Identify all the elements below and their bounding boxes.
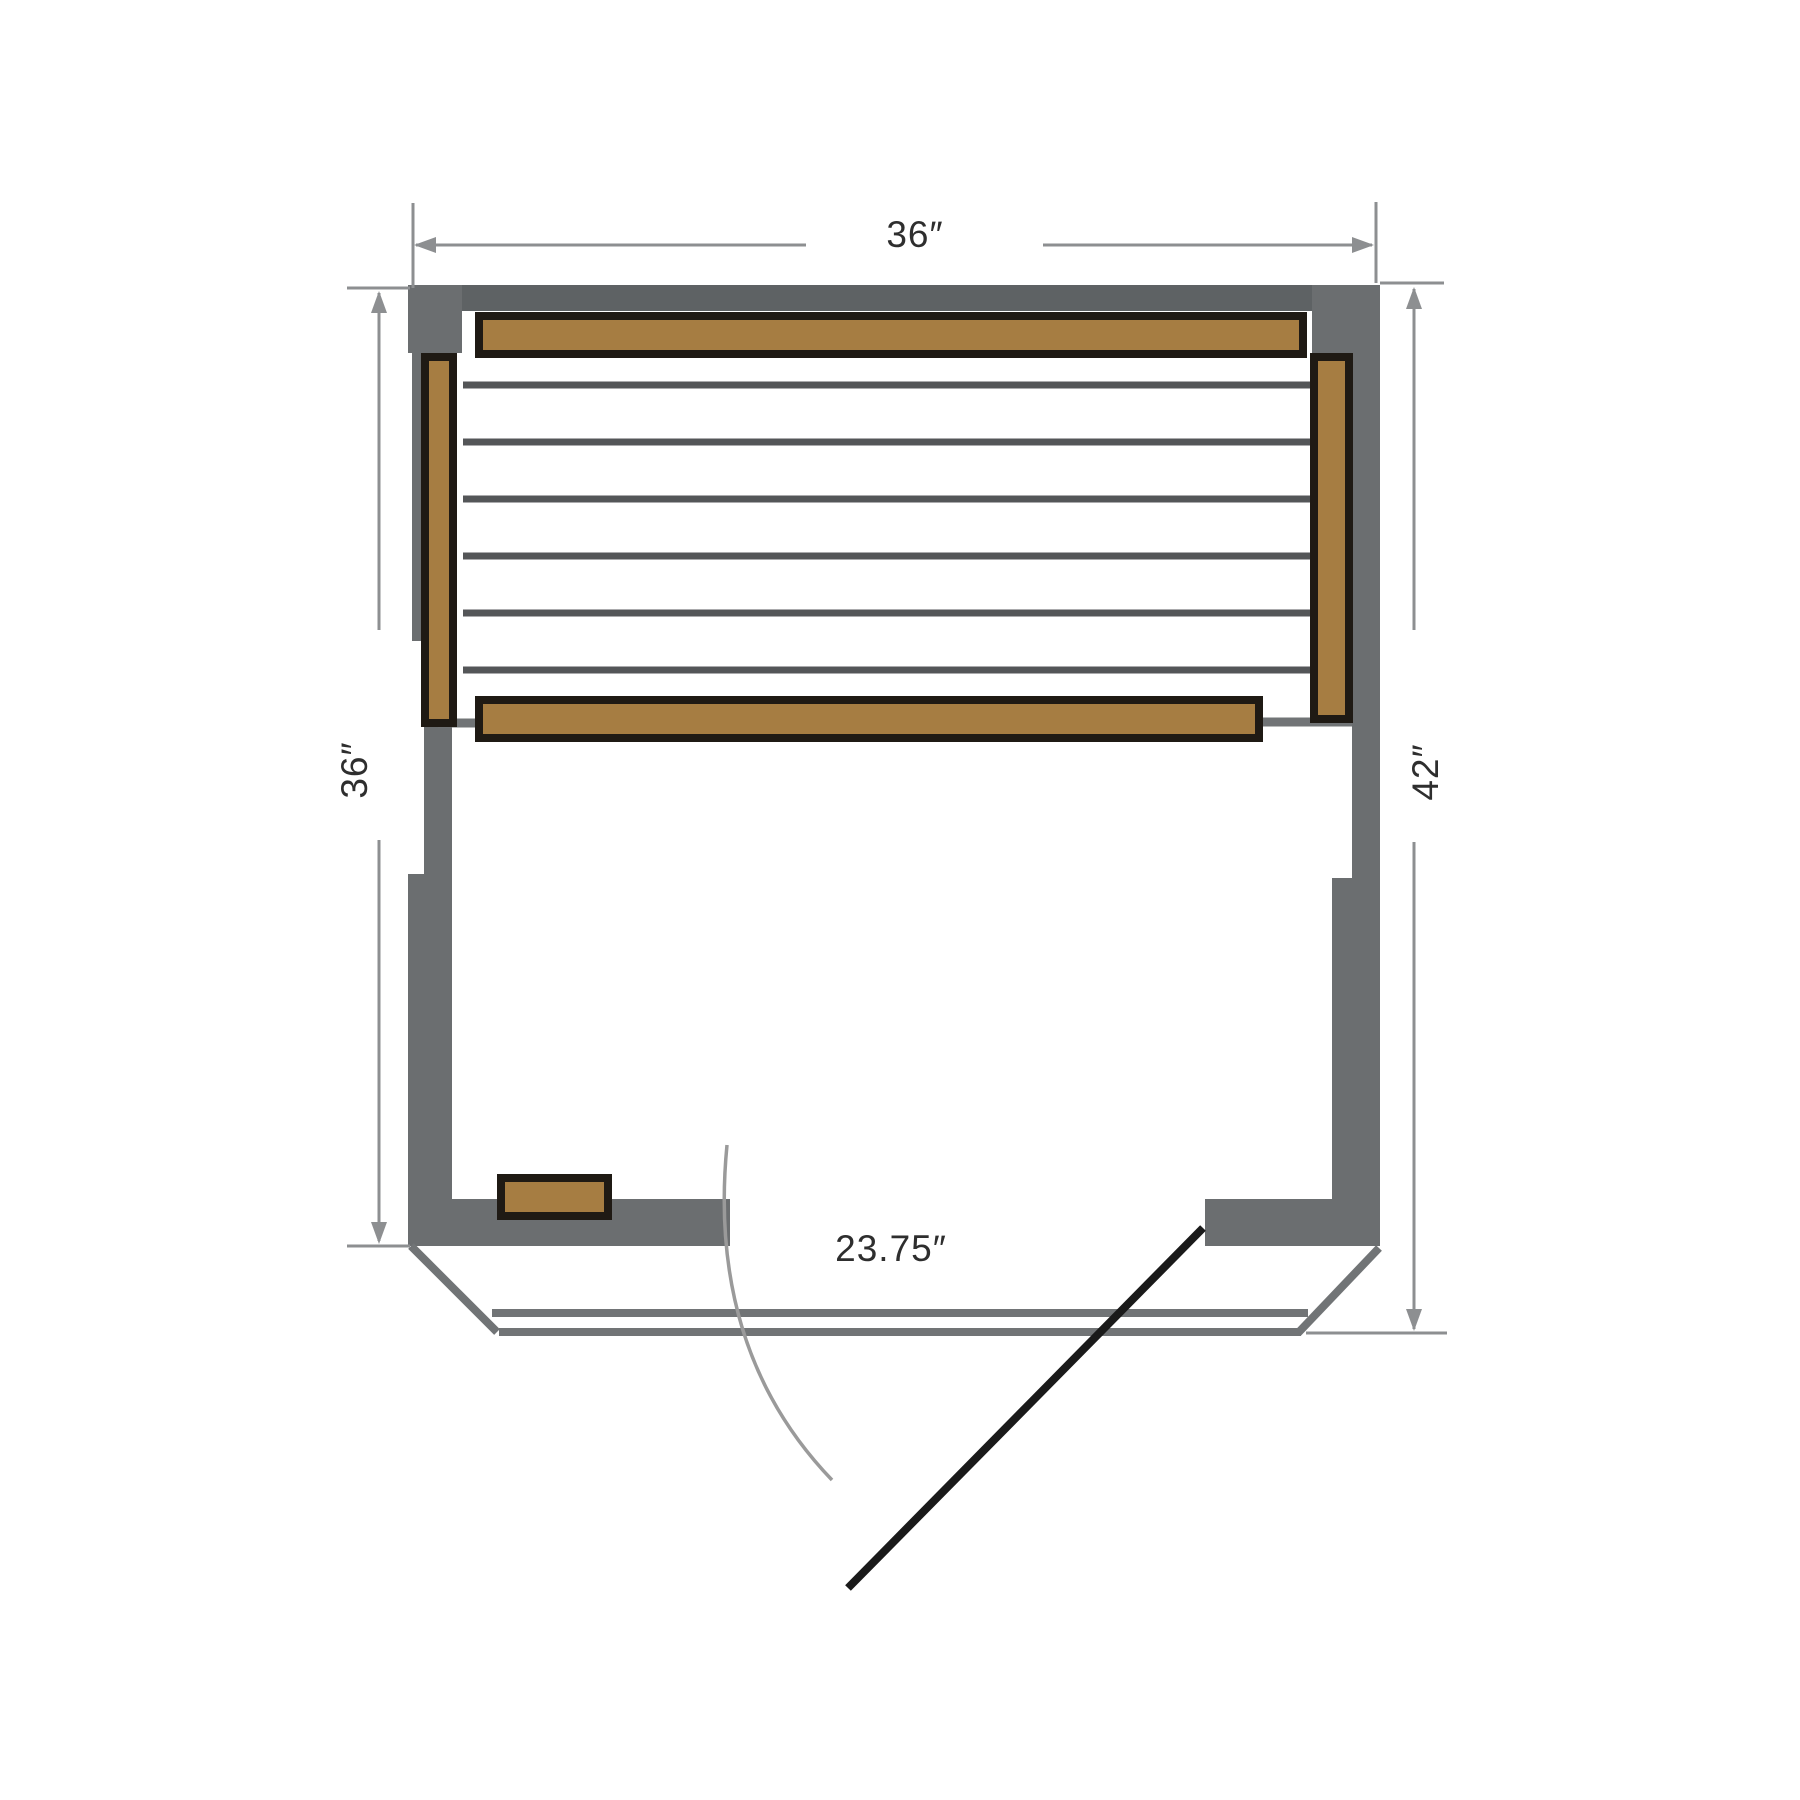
bench-front-plank — [479, 700, 1259, 738]
front-panel-bevel-right — [1298, 1248, 1379, 1333]
bench-backrest-plank — [479, 316, 1303, 354]
sauna-floorplan-page: 36″ 36″ 42″ 23.75″ — [0, 0, 1800, 1800]
dimension-lines — [347, 202, 1447, 1333]
wall-right-upper — [1352, 285, 1380, 878]
walls — [408, 285, 1380, 1246]
dim-label-right-depth: 42″ — [1405, 743, 1446, 800]
arrow-down-icon — [371, 1222, 387, 1244]
arrow-up-icon — [371, 291, 387, 313]
bench-side-right — [1314, 357, 1349, 719]
arrow-up-icon — [1406, 287, 1422, 309]
wall-top — [408, 285, 1380, 311]
arrow-down-icon — [1406, 1309, 1422, 1331]
dim-label-left-depth: 36″ — [334, 741, 375, 798]
wall-right-lower — [1332, 878, 1380, 1246]
dimension-arrows — [371, 237, 1422, 1331]
arrow-left-icon — [414, 237, 436, 253]
dim-label-door-opening: 23.75″ — [835, 1228, 947, 1269]
bench-side-left — [425, 357, 453, 723]
heater — [501, 1178, 608, 1216]
wall-bottom-right-stub — [1205, 1199, 1380, 1246]
wall-left-lower — [408, 874, 452, 1246]
sauna-floorplan-diagram: 36″ 36″ 42″ 23.75″ — [0, 0, 1800, 1800]
dim-label-top-width: 36″ — [886, 214, 943, 255]
door-panel — [848, 1228, 1203, 1588]
bench-slats — [463, 385, 1311, 670]
arrow-right-icon — [1352, 237, 1374, 253]
front-panel-bevel-left — [411, 1246, 497, 1332]
wood-pieces — [425, 316, 1349, 1216]
